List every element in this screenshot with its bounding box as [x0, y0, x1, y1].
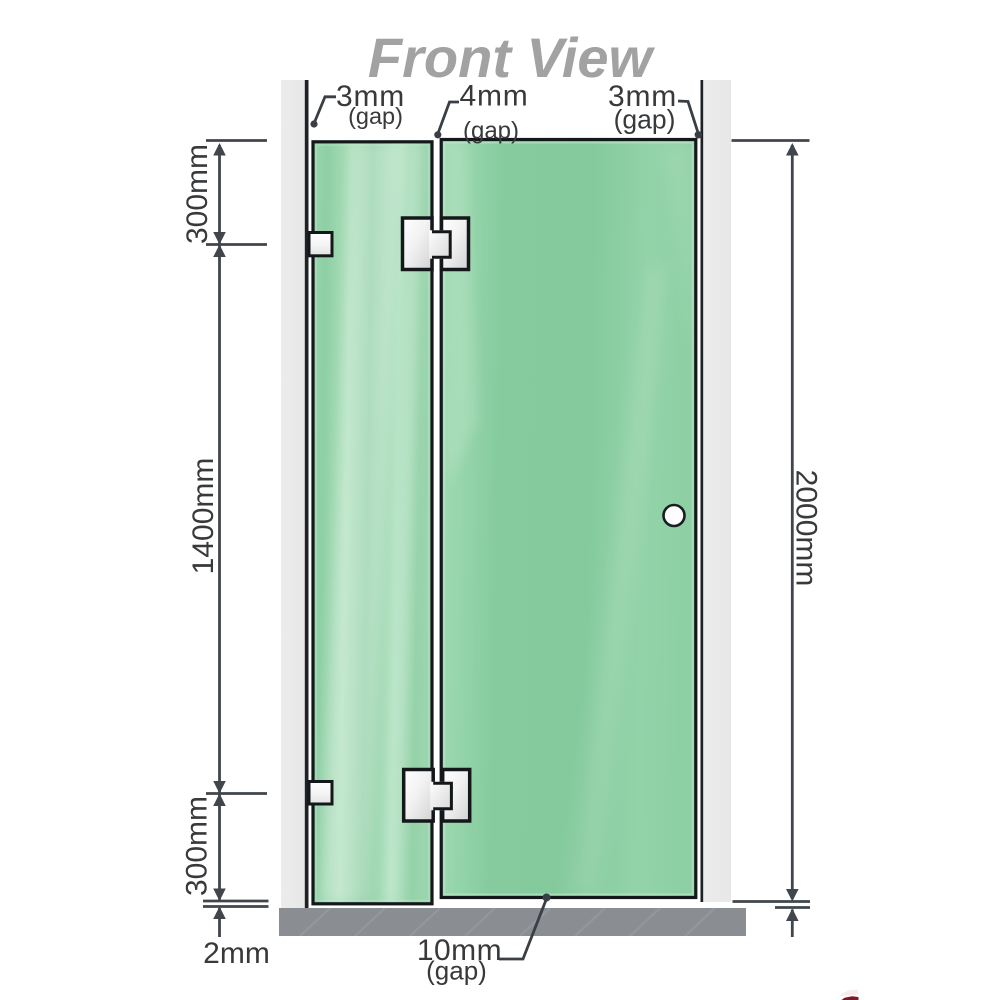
svg-text:2mm: 2mm: [203, 937, 270, 970]
svg-text:300mm: 300mm: [181, 796, 214, 896]
svg-text:(gap): (gap): [463, 118, 519, 145]
svg-text:300mm: 300mm: [181, 144, 214, 244]
svg-text:(gap): (gap): [426, 956, 487, 986]
svg-text:(gap): (gap): [348, 103, 403, 129]
svg-text:4mm: 4mm: [459, 80, 528, 113]
svg-text:1400mm: 1400mm: [187, 458, 220, 575]
svg-text:(gap): (gap): [614, 105, 676, 135]
svg-text:2000mm: 2000mm: [790, 470, 823, 587]
